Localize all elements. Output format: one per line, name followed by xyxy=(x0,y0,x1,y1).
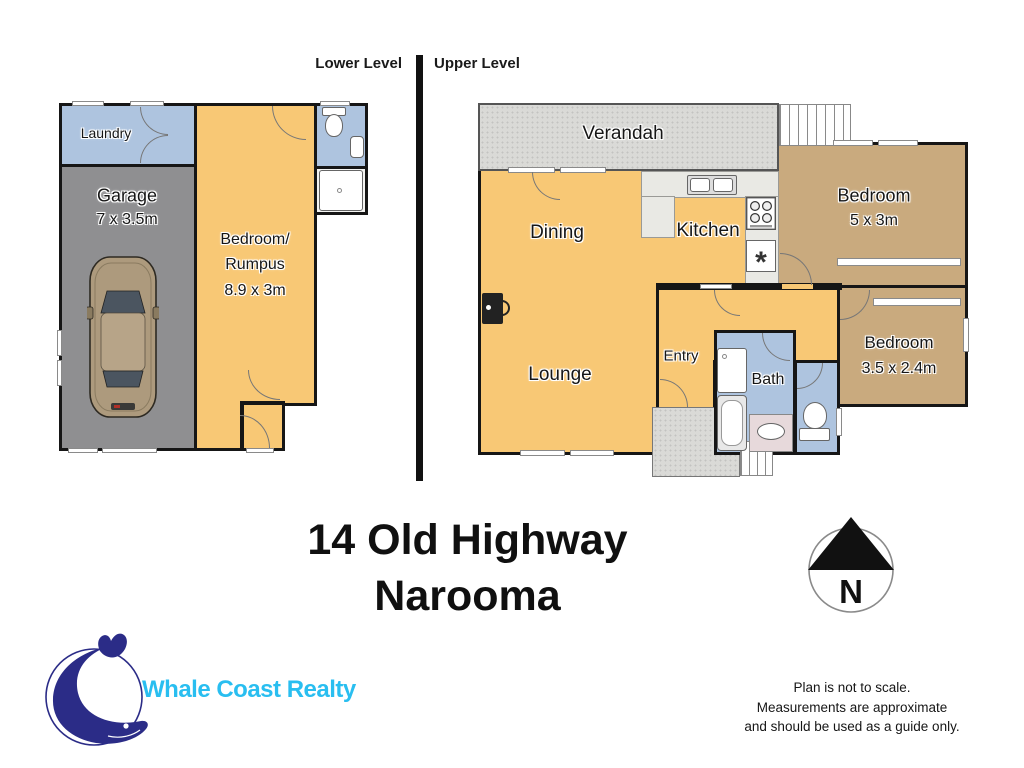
alcove-wall-h xyxy=(240,401,285,405)
fireplace-dot xyxy=(486,305,491,310)
car-roof xyxy=(101,313,145,371)
disclaimer-line-1: Plan is not to scale. xyxy=(727,678,977,698)
title-line-1: 14 Old Highway xyxy=(240,512,695,568)
window xyxy=(833,140,873,146)
vanity-sink xyxy=(757,423,785,440)
wardrobe-rail xyxy=(837,258,961,266)
bedroom-large-label: Bedroom xyxy=(837,186,910,207)
rumpus-label-2: Rumpus xyxy=(225,256,285,274)
floorplan-page: Lower Level Upper Level xyxy=(0,0,1024,768)
laundry-label: Laundry xyxy=(81,125,132,141)
whale-eye xyxy=(123,723,128,728)
lounge-label: Lounge xyxy=(528,364,591,386)
disclaimer: Plan is not to scale. Measurements are a… xyxy=(727,678,977,737)
property-title: 14 Old Highway Narooma xyxy=(240,512,695,624)
window xyxy=(57,360,62,386)
compass-letter: N xyxy=(839,573,863,610)
tail-light xyxy=(114,405,120,408)
verandah-label: Verandah xyxy=(582,123,663,145)
garage-size: 7 x 3.5m xyxy=(96,211,157,229)
window xyxy=(560,167,606,173)
title-line-2: Narooma xyxy=(240,568,695,624)
window xyxy=(570,450,614,456)
windshield xyxy=(101,291,145,313)
appliance-symbol-box: * xyxy=(746,240,776,272)
rumpus-notch xyxy=(282,403,317,451)
window xyxy=(520,450,565,456)
disclaimer-line-2: Measurements are approximate xyxy=(727,698,977,718)
window xyxy=(836,408,842,436)
garage-label: Garage xyxy=(97,186,157,207)
toilet-bowl xyxy=(325,114,343,137)
window xyxy=(130,101,164,106)
whale-logo-icon xyxy=(38,633,150,751)
kitchen-sink-bowl-right xyxy=(713,178,733,192)
level-divider xyxy=(416,55,423,481)
rumpus-size: 8.9 x 3m xyxy=(224,282,285,300)
bedroom-small-size: 3.5 x 2.4m xyxy=(862,360,937,378)
shower-drain xyxy=(337,188,342,193)
shower-head xyxy=(722,354,727,359)
kitchen-label: Kitchen xyxy=(676,220,739,242)
toilet-tank xyxy=(799,428,830,441)
sink xyxy=(350,136,364,158)
window xyxy=(102,448,157,453)
door-gap xyxy=(246,448,274,453)
lower-level-label: Lower Level xyxy=(300,55,402,72)
kitchen-sink-bowl-left xyxy=(690,178,710,192)
upper-level-label: Upper Level xyxy=(434,55,554,72)
window xyxy=(320,101,350,106)
window xyxy=(72,101,104,106)
kitchen-counter-left xyxy=(641,196,675,238)
room-bedroom-rumpus xyxy=(194,103,317,451)
window xyxy=(700,284,732,289)
bathtub-inner xyxy=(721,400,743,446)
dining-label: Dining xyxy=(530,222,584,244)
window xyxy=(963,318,969,352)
rumpus-label-1: Bedroom/ xyxy=(220,231,289,249)
window xyxy=(57,330,62,356)
entry-label: Entry xyxy=(663,348,698,365)
whale-tail xyxy=(98,634,127,658)
bedroom-large-size: 5 x 3m xyxy=(850,212,898,230)
window xyxy=(68,448,98,453)
bath-label: Bath xyxy=(752,371,785,389)
car-top-view xyxy=(87,253,159,421)
window xyxy=(878,140,918,146)
stove-cooktop xyxy=(746,197,776,230)
logo-text: Whale Coast Realty xyxy=(142,676,356,704)
kitchen-hall-wall xyxy=(656,283,842,290)
wardrobe-rail xyxy=(873,298,961,306)
mirror-left xyxy=(87,307,93,319)
bedroom-small-label: Bedroom xyxy=(865,333,934,353)
whale-body xyxy=(53,647,148,744)
north-compass: N xyxy=(805,513,897,613)
rear-window xyxy=(103,371,143,387)
mirror-right xyxy=(153,307,159,319)
toilet-bowl xyxy=(803,402,827,429)
disclaimer-line-3: and should be used as a guide only. xyxy=(727,717,977,737)
